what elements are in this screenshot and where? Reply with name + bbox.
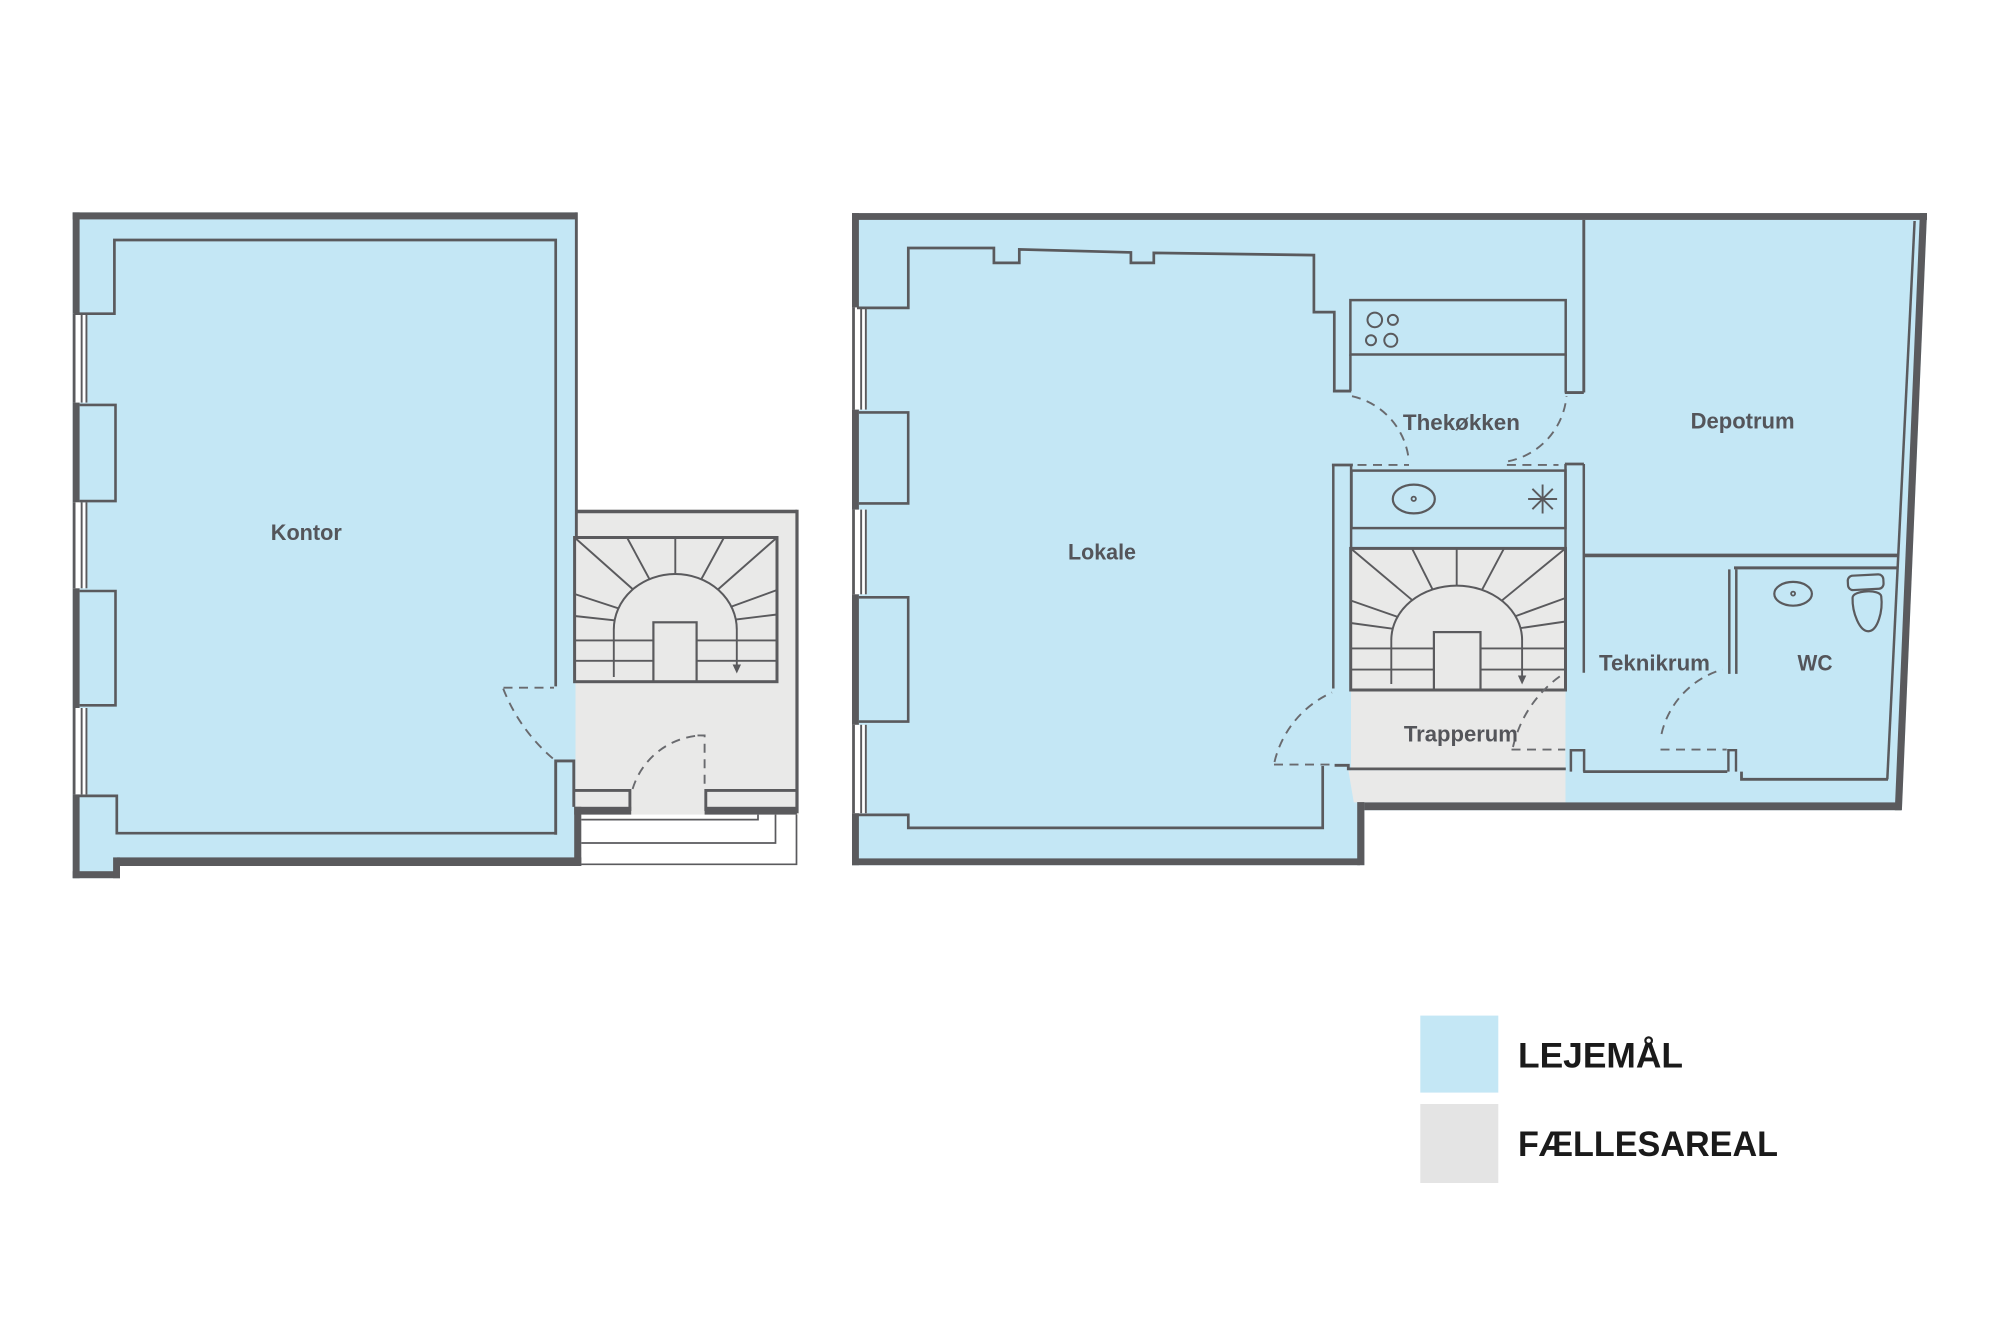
svg-text:FÆLLESAREAL: FÆLLESAREAL: [1518, 1125, 1778, 1164]
svg-text:WC: WC: [1798, 651, 1833, 676]
svg-text:Lokale: Lokale: [1068, 540, 1136, 565]
svg-text:Trapperum: Trapperum: [1404, 722, 1518, 747]
svg-text:Kontor: Kontor: [271, 520, 342, 545]
svg-text:Thekøkken: Thekøkken: [1403, 410, 1520, 435]
svg-text:Depotrum: Depotrum: [1691, 409, 1795, 434]
svg-text:LEJEMÅL: LEJEMÅL: [1518, 1036, 1683, 1076]
svg-text:Teknikrum: Teknikrum: [1599, 651, 1710, 676]
